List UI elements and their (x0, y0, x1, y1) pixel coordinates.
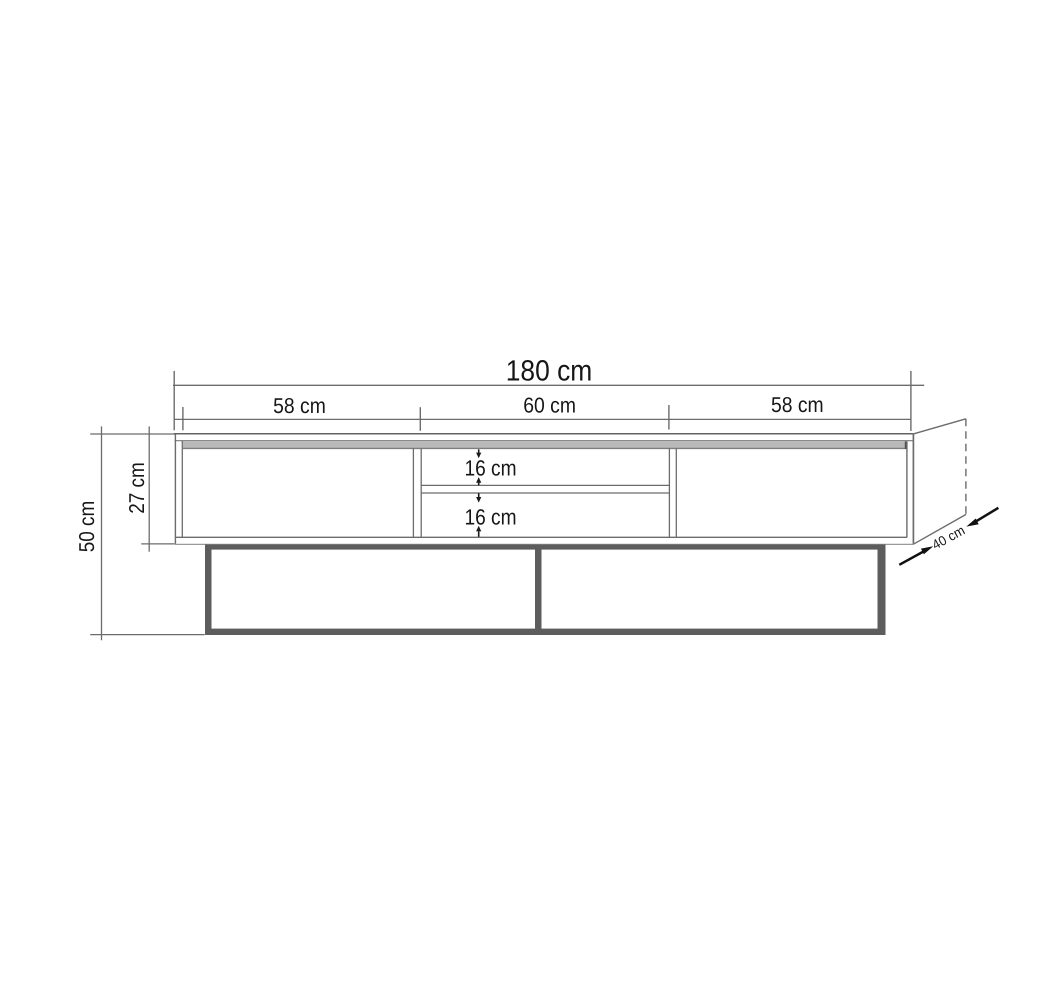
svg-text:50 cm: 50 cm (75, 501, 99, 553)
svg-text:16 cm: 16 cm (464, 505, 516, 530)
svg-text:16 cm: 16 cm (464, 456, 516, 481)
svg-text:27 cm: 27 cm (125, 462, 149, 514)
svg-text:58 cm: 58 cm (273, 394, 326, 418)
svg-text:60 cm: 60 cm (523, 394, 576, 418)
svg-text:58 cm: 58 cm (771, 393, 824, 417)
svg-text:180 cm: 180 cm (506, 354, 592, 387)
